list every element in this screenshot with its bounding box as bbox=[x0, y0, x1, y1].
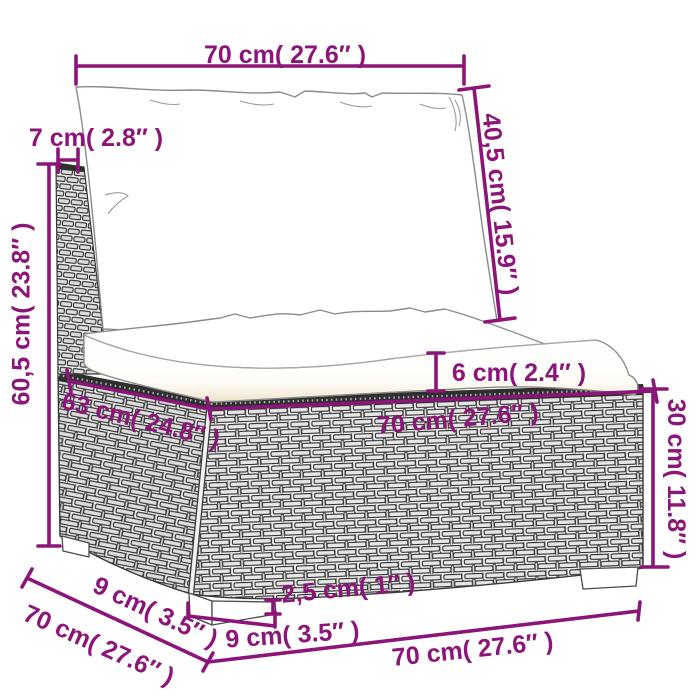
svg-text:7 cm( 2.8″ ): 7 cm( 2.8″ ) bbox=[29, 124, 163, 152]
svg-text:60,5 cm( 23.8″ ): 60,5 cm( 23.8″ ) bbox=[8, 223, 36, 406]
svg-text:70 cm( 27.6″ ): 70 cm( 27.6″ ) bbox=[204, 41, 366, 69]
svg-text:30 cm( 11.8″ ): 30 cm( 11.8″ ) bbox=[662, 399, 690, 560]
svg-text:6 cm( 2.4″ ): 6 cm( 2.4″ ) bbox=[452, 359, 586, 387]
